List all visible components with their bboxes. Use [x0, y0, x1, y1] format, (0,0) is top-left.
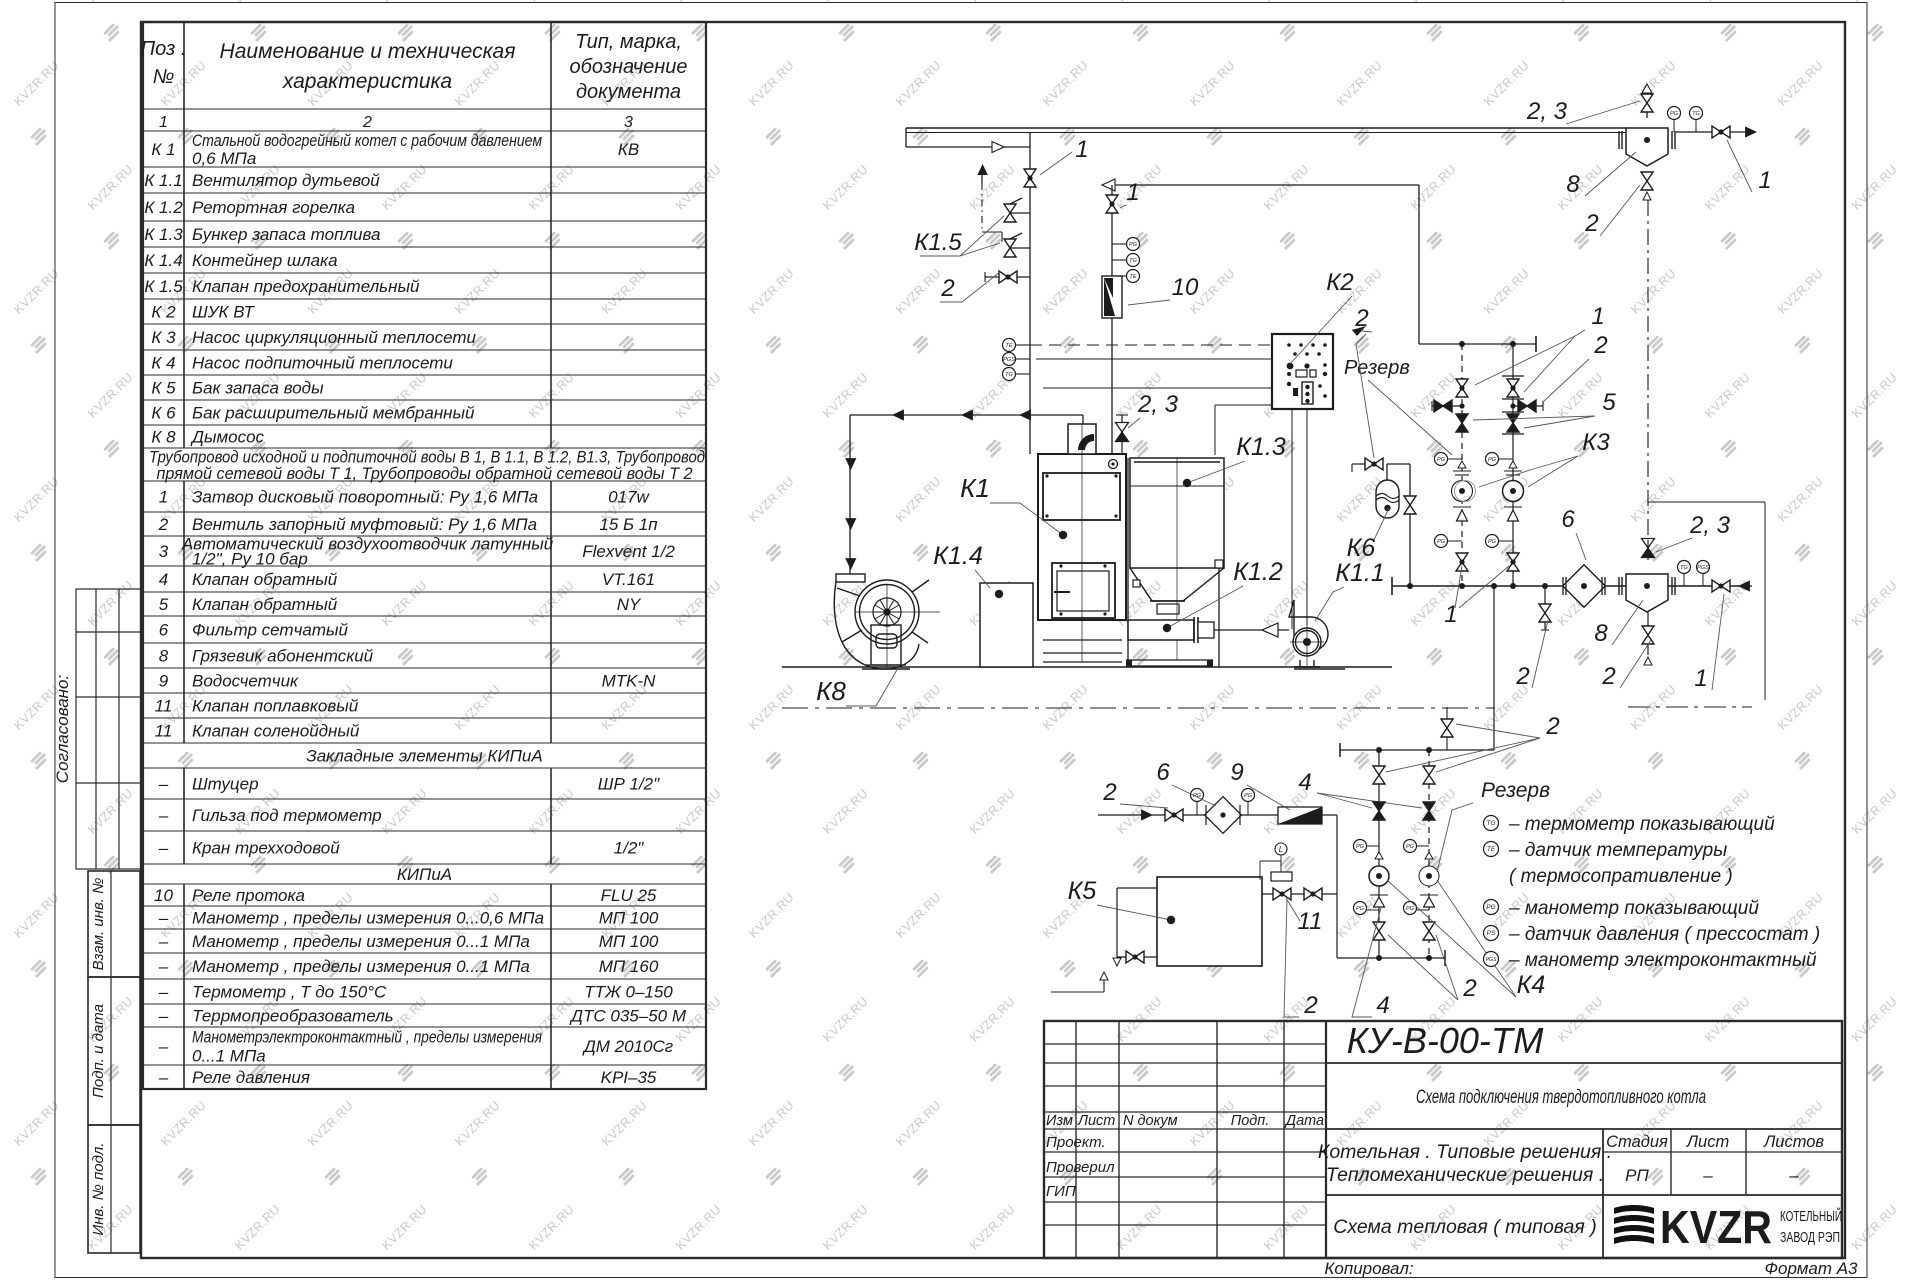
svg-text:Насос подпиточный теплосети: Насос подпиточный теплосети — [192, 354, 453, 373]
svg-text:2, 3: 2, 3 — [1137, 391, 1179, 418]
svg-text:2: 2 — [1102, 779, 1116, 806]
svg-text:К1.2: К1.2 — [1233, 558, 1283, 586]
svg-text:Грязевик абонентский: Грязевик абонентский — [192, 647, 374, 666]
svg-text:FLU 25: FLU 25 — [601, 886, 657, 905]
svg-text:К5: К5 — [1068, 877, 1097, 905]
svg-text:4: 4 — [1376, 992, 1389, 1019]
svg-text:К 2: К 2 — [151, 303, 176, 322]
svg-text:PGS: PGS — [1486, 957, 1497, 963]
svg-text:ШР 1/2": ШР 1/2" — [598, 775, 660, 794]
svg-text:2: 2 — [1601, 663, 1615, 690]
svg-text:11: 11 — [155, 722, 173, 741]
svg-text:К 1.3: К 1.3 — [144, 225, 183, 244]
svg-text:Клапан поплавковый: Клапан поплавковый — [192, 697, 359, 716]
svg-text:Клапан соленойдный: Клапан соленойдный — [192, 722, 360, 741]
svg-text:Котельная . Типовые решения .: Котельная . Типовые решения . — [1318, 1141, 1612, 1163]
svg-text:ДТС 035–50 М: ДТС 035–50 М — [569, 1007, 687, 1026]
svg-text:PG: PG — [1406, 906, 1415, 912]
svg-text:КОТЕЛЬНЫЙ: КОТЕЛЬНЫЙ — [1780, 1207, 1842, 1225]
svg-text:PG: PG — [1670, 111, 1679, 117]
svg-text:2: 2 — [362, 114, 372, 131]
svg-text:ЗАВОД РЭП: ЗАВОД РЭП — [1780, 1230, 1840, 1246]
svg-text:Схема тепловая ( типовая ): Схема тепловая ( типовая ) — [1333, 1216, 1596, 1238]
svg-text:8: 8 — [1566, 171, 1580, 198]
svg-text:1: 1 — [1758, 167, 1771, 194]
svg-text:11: 11 — [1298, 908, 1323, 935]
svg-text:TG: TG — [1129, 258, 1137, 264]
svg-text:К8: К8 — [816, 676, 846, 706]
svg-text:Кран трехходовой: Кран трехходовой — [192, 839, 340, 858]
svg-text:МП 160: МП 160 — [599, 957, 659, 976]
svg-text:N докум: N докум — [1123, 1113, 1178, 1129]
svg-text:1: 1 — [1075, 136, 1088, 163]
svg-text:TG: TG — [1486, 820, 1495, 827]
svg-text:–: – — [1788, 1166, 1799, 1185]
svg-text:КИПиА: КИПиА — [397, 865, 452, 884]
svg-text:1: 1 — [159, 114, 168, 131]
svg-text:–: – — [158, 806, 169, 825]
svg-text:1: 1 — [1591, 303, 1604, 330]
svg-text:КУ-В-00-ТМ: КУ-В-00-ТМ — [1347, 1020, 1544, 1061]
svg-text:–: – — [1702, 1166, 1713, 1185]
svg-text:К1.3: К1.3 — [1236, 433, 1286, 461]
svg-text:1: 1 — [1694, 665, 1707, 692]
svg-text:Штуцер: Штуцер — [192, 775, 259, 794]
svg-text:Вентиль запорный муфтовый: Ру: Вентиль запорный муфтовый: Ру 1,6 МПа — [192, 515, 537, 534]
svg-text:Клапан предохранительный: Клапан предохранительный — [192, 277, 420, 296]
svg-text:Ретортная горелка: Ретортная горелка — [192, 198, 355, 217]
svg-text:2: 2 — [1303, 992, 1317, 1019]
svg-text:документа: документа — [576, 81, 681, 103]
svg-text:Тип, марка,: Тип, марка, — [575, 31, 682, 53]
svg-text:KVZR: KVZR — [1660, 1201, 1772, 1253]
svg-text:017w: 017w — [608, 488, 650, 507]
svg-text:2: 2 — [1593, 332, 1607, 359]
svg-text:К 1.2: К 1.2 — [144, 198, 183, 217]
svg-text:VT.161: VT.161 — [602, 570, 655, 589]
svg-text:Подп. и дата: Подп. и дата — [90, 1004, 107, 1098]
svg-text:Стадия: Стадия — [1606, 1133, 1668, 1151]
svg-text:–: – — [158, 957, 169, 976]
svg-text:2: 2 — [1545, 713, 1559, 740]
svg-text:Листов: Листов — [1763, 1133, 1824, 1151]
svg-text:–: – — [158, 1037, 169, 1056]
svg-text:3: 3 — [624, 114, 633, 131]
svg-text:Инв. № подл.: Инв. № подл. — [90, 1142, 107, 1235]
svg-text:2: 2 — [1515, 663, 1529, 690]
svg-text:– манометр показывающий: – манометр показывающий — [1508, 898, 1759, 919]
svg-text:К 5: К 5 — [151, 379, 176, 398]
svg-text:Клапан обратный: Клапан обратный — [192, 595, 338, 614]
svg-text:К 1.1: К 1.1 — [144, 171, 182, 190]
svg-text:8: 8 — [159, 647, 169, 666]
svg-text:К 1.4: К 1.4 — [144, 251, 182, 270]
svg-text:Поз .: Поз . — [141, 38, 187, 60]
svg-text:Flexvent 1/2: Flexvent 1/2 — [582, 542, 675, 561]
svg-text:TG: TG — [1692, 111, 1700, 117]
svg-text:Взам. инв. №: Взам. инв. № — [90, 878, 107, 971]
svg-text:PG: PG — [1406, 844, 1415, 850]
svg-text:К 4: К 4 — [151, 354, 175, 373]
svg-text:9: 9 — [159, 672, 169, 691]
svg-text:Клапан обратный: Клапан обратный — [192, 570, 338, 589]
svg-text:Реле давления: Реле давления — [192, 1068, 310, 1087]
svg-text:Дата: Дата — [1284, 1113, 1324, 1129]
svg-text:Манометр , пределы измерения: Манометр , пределы измерения 0...0,6 МПа — [192, 909, 544, 928]
svg-text:РП: РП — [1625, 1166, 1649, 1185]
svg-text:МП 100: МП 100 — [599, 932, 659, 951]
svg-text:ТТЖ 0–150: ТТЖ 0–150 — [584, 983, 673, 1002]
svg-text:К1: К1 — [960, 473, 990, 503]
svg-text:( термосопративление ): ( термосопративление ) — [1509, 866, 1733, 887]
svg-text:Бункер запаса топлива: Бункер запаса топлива — [192, 225, 380, 244]
svg-text:МП 100: МП 100 — [599, 909, 659, 928]
svg-text:ГИП: ГИП — [1046, 1183, 1076, 1200]
svg-text:1/2", Ру 10 бар: 1/2", Ру 10 бар — [192, 550, 308, 569]
svg-text:Проверил: Проверил — [1046, 1159, 1115, 1176]
svg-text:PGS: PGS — [1697, 565, 1709, 571]
svg-text:PG: PG — [1488, 539, 1497, 545]
svg-text:Стальной водогрейный котел с р: Стальной водогрейный котел с рабочим дав… — [192, 131, 542, 150]
svg-text:TE: TE — [1005, 343, 1012, 349]
svg-text:MTK-N: MTK-N — [602, 672, 657, 691]
svg-text:10: 10 — [154, 886, 173, 905]
svg-text:8: 8 — [1594, 620, 1608, 647]
svg-text:NY: NY — [617, 595, 642, 614]
svg-text:PS: PS — [1487, 930, 1496, 937]
svg-text:9: 9 — [1230, 759, 1243, 786]
svg-text:–: – — [158, 983, 169, 1002]
svg-text:0...1 МПа: 0...1 МПа — [192, 1047, 266, 1066]
svg-text:6: 6 — [1156, 759, 1170, 786]
svg-text:KPI–35: KPI–35 — [601, 1068, 657, 1087]
svg-text:ШУК ВТ: ШУК ВТ — [192, 303, 255, 322]
svg-text:Фильтр сетчатый: Фильтр сетчатый — [192, 621, 348, 640]
svg-text:PG: PG — [1356, 844, 1365, 850]
svg-text:К 8: К 8 — [151, 428, 176, 447]
svg-text:К1.5: К1.5 — [914, 229, 962, 256]
svg-text:Лист: Лист — [1686, 1133, 1729, 1151]
svg-text:Дымосос: Дымосос — [190, 428, 265, 447]
svg-text:К1.1: К1.1 — [1335, 559, 1385, 587]
svg-text:PG: PG — [1129, 242, 1138, 248]
svg-text:0,6 МПа: 0,6 МПа — [192, 149, 256, 168]
svg-text:–: – — [158, 1068, 169, 1087]
svg-text:1: 1 — [159, 488, 168, 507]
svg-text:Проект.: Проект. — [1046, 1134, 1106, 1151]
svg-text:2: 2 — [1462, 975, 1476, 1002]
svg-text:Водосчетчик: Водосчетчик — [192, 672, 299, 691]
svg-text:Закладные элементы КИПиА: Закладные элементы КИПиА — [306, 747, 542, 766]
svg-text:характеристика: характеристика — [282, 70, 452, 93]
svg-text:Резерв: Резерв — [1344, 357, 1410, 379]
svg-text:5: 5 — [1602, 389, 1616, 416]
svg-text:–: – — [158, 909, 169, 928]
svg-text:К 6: К 6 — [151, 404, 176, 423]
svg-text:TG: TG — [1680, 565, 1688, 571]
svg-text:ДМ 2010Сг: ДМ 2010Сг — [582, 1037, 673, 1056]
svg-text:–: – — [158, 1007, 169, 1026]
svg-text:TE: TE — [1129, 274, 1136, 280]
svg-text:PG: PG — [1437, 457, 1446, 463]
svg-text:Тепломеханические решения .: Тепломеханические решения . — [1326, 1164, 1604, 1186]
svg-text:– термометр показывающий: – термометр показывающий — [1508, 814, 1775, 835]
svg-text:–: – — [158, 932, 169, 951]
svg-text:– датчик температуры: – датчик температуры — [1508, 840, 1727, 861]
svg-text:6: 6 — [1561, 506, 1575, 533]
svg-text:Копировал:: Копировал: — [1324, 1259, 1414, 1278]
svg-text:К6: К6 — [1347, 534, 1376, 562]
svg-text:PG: PG — [1488, 457, 1497, 463]
svg-text:Схема подключения твердотоплив: Схема подключения твердотопливного котла — [1416, 1086, 1706, 1108]
svg-text:1/2": 1/2" — [614, 839, 645, 858]
svg-text:К 1: К 1 — [151, 140, 175, 159]
svg-text:L: L — [1279, 845, 1283, 854]
svg-text:2: 2 — [1584, 210, 1598, 237]
svg-text:PG: PG — [1486, 904, 1495, 911]
svg-text:Бак запаса воды: Бак запаса воды — [192, 379, 324, 398]
svg-text:5: 5 — [159, 595, 169, 614]
svg-text:Термометр , Т до 150°С: Термометр , Т до 150°С — [192, 983, 387, 1002]
svg-text:Формат А3: Формат А3 — [1764, 1259, 1858, 1278]
svg-text:Гильза под термометр: Гильза под термометр — [192, 806, 382, 825]
svg-text:–: – — [158, 839, 169, 858]
svg-text:Лист: Лист — [1077, 1113, 1115, 1129]
svg-text:Манометр , пределы измерения: Манометр , пределы измерения 0...1 МПа — [192, 957, 530, 976]
svg-text:–: – — [158, 775, 169, 794]
svg-text:Резерв: Резерв — [1481, 779, 1550, 802]
svg-text:2, 3: 2, 3 — [1689, 512, 1731, 539]
svg-text:обозначение: обозначение — [569, 56, 687, 78]
svg-text:– датчик давления ( прессос: – датчик давления ( прессостат ) — [1508, 924, 1820, 945]
svg-text:Согласовано:: Согласовано: — [53, 675, 72, 784]
svg-text:TG: TG — [1005, 372, 1013, 378]
svg-text:К4: К4 — [1517, 971, 1546, 999]
svg-text:Террмопреобразователь: Террмопреобразователь — [192, 1007, 394, 1026]
svg-text:№: № — [153, 66, 175, 88]
svg-text:6: 6 — [159, 621, 169, 640]
svg-text:Подп.: Подп. — [1231, 1113, 1270, 1129]
svg-text:11: 11 — [155, 697, 173, 716]
svg-text:Наименование и техническая: Наименование и техническая — [220, 40, 516, 63]
svg-text:PG: PG — [1437, 539, 1446, 545]
svg-text:2, 3: 2, 3 — [1526, 98, 1568, 125]
svg-text:К3: К3 — [1582, 429, 1610, 456]
svg-text:Изм: Изм — [1046, 1113, 1073, 1129]
svg-text:4: 4 — [159, 570, 168, 589]
svg-text:Вентилятор дутьевой: Вентилятор дутьевой — [192, 171, 380, 190]
svg-text:Манометр , пределы измерения: Манометр , пределы измерения 0...1 МПа — [192, 932, 530, 951]
svg-text:прямой сетевой воды Т 1, Труб: прямой сетевой воды Т 1, Трубопроводы об… — [157, 464, 694, 483]
svg-text:TE: TE — [1487, 846, 1496, 853]
svg-text:PG: PG — [1244, 793, 1253, 799]
svg-text:Бак расширительный мембранный: Бак расширительный мембранный — [192, 404, 475, 423]
svg-text:К2: К2 — [1326, 269, 1354, 296]
svg-text:PGS: PGS — [1003, 357, 1015, 363]
svg-text:4: 4 — [1298, 769, 1311, 796]
svg-text:Насос циркуляционный теплосети: Насос циркуляционный теплосети — [192, 328, 477, 347]
svg-text:Контейнер шлака: Контейнер шлака — [192, 251, 338, 270]
svg-text:10: 10 — [1172, 274, 1199, 301]
svg-text:2: 2 — [158, 515, 169, 534]
svg-text:15 Б 1п: 15 Б 1п — [599, 515, 658, 534]
svg-text:КВ: КВ — [618, 140, 639, 159]
svg-text:К 3: К 3 — [151, 328, 176, 347]
svg-text:1: 1 — [1126, 179, 1139, 206]
svg-text:Затвор дисковый поворотный: Р: Затвор дисковый поворотный: Ру 1,6 МПа — [192, 488, 538, 507]
svg-text:Манометрэлектроконтактный , п: Манометрэлектроконтактный , пределы изме… — [192, 1028, 542, 1047]
svg-text:2: 2 — [940, 275, 954, 302]
svg-text:PG: PG — [1356, 906, 1365, 912]
svg-text:К1.4: К1.4 — [933, 542, 983, 570]
svg-text:К 1.5: К 1.5 — [144, 277, 183, 296]
svg-text:– манометр электроконтактный: – манометр электроконтактный — [1508, 950, 1817, 971]
svg-text:Реле протока: Реле протока — [192, 886, 305, 905]
svg-text:3: 3 — [159, 542, 169, 561]
